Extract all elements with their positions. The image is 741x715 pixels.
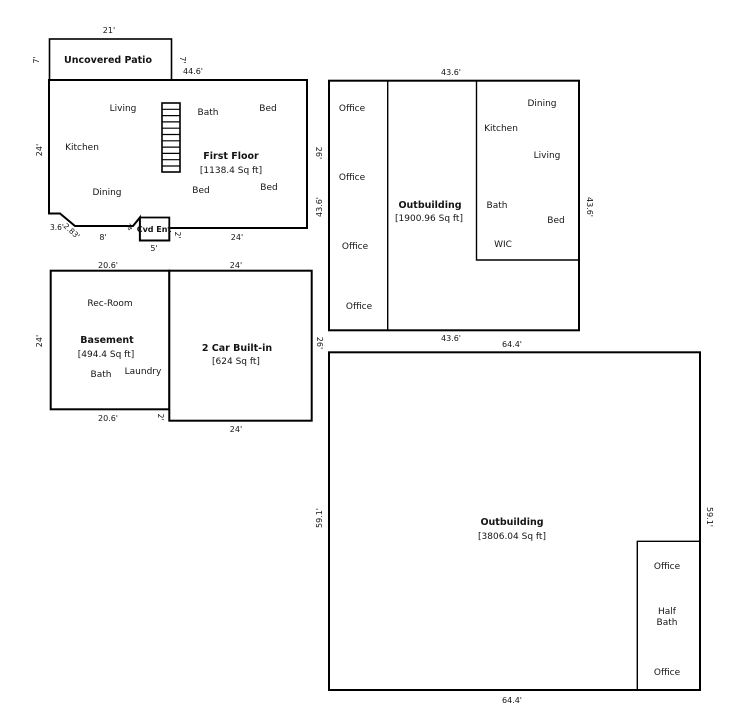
first-floor-dim-right: 26' xyxy=(314,147,323,159)
outbuilding2-dim-top: 64.4' xyxy=(502,340,522,349)
entry-dim-side: 2' xyxy=(173,232,182,239)
basement-dim-bottom: 20.6' xyxy=(98,414,118,423)
room-label-laundry: Laundry xyxy=(125,367,162,377)
room-label-bed: Bed xyxy=(260,183,277,193)
first-floor-name: First Floor xyxy=(203,151,259,162)
room-label-wic: WIC xyxy=(494,240,512,250)
garage-area: [624 Sq ft] xyxy=(212,357,260,367)
staircase-icon xyxy=(162,103,180,172)
first-floor-dim-top: 44.6' xyxy=(183,67,203,76)
first-floor-dim-bottom: 24' xyxy=(231,233,243,242)
outbuilding2-name: Outbuilding xyxy=(480,517,543,528)
patio-dim-left: 7' xyxy=(32,56,41,63)
outbuilding1-dim-bottom: 43.6' xyxy=(441,334,461,343)
garage-dim-top: 24' xyxy=(230,261,242,270)
room-label-living: Living xyxy=(534,151,561,161)
outbuilding1-name: Outbuilding xyxy=(398,200,461,211)
garage: 24' 2 Car Built-in [624 Sq ft] 26' 24' xyxy=(169,261,324,434)
room-label-bed: Bed xyxy=(192,186,209,196)
garage-dim-bottom: 24' xyxy=(230,425,242,434)
room-label-office: Office xyxy=(654,562,681,572)
outbuilding-2: 64.4' 59.1' 59.1' 64.4' Outbuilding [380… xyxy=(315,340,714,705)
outbuilding-1: 43.6' 43.6' 43.6' 43.6' Office Office Of… xyxy=(315,68,594,343)
room-label-office: Office xyxy=(339,173,366,183)
outbuilding1-dim-top: 43.6' xyxy=(441,68,461,77)
covered-entry-label: Cvd Ent xyxy=(137,225,172,234)
basement-area: [494.4 Sq ft] xyxy=(78,350,134,360)
outbuilding2-dim-left: 59.1' xyxy=(315,508,324,528)
outbuilding2-dim-bottom: 64.4' xyxy=(502,696,522,705)
room-label-bath: Bath xyxy=(487,201,508,211)
patio-dim-right: 7' xyxy=(178,56,187,63)
first-floor: 44.6' 24' 26' Living Bath Bed Kitchen Fi… xyxy=(35,67,323,253)
first-floor-dim-porch: 8' xyxy=(99,233,106,242)
basement: 20.6' 24' Rec-Room Basement [494.4 Sq ft… xyxy=(35,261,169,423)
basement-dim-top: 20.6' xyxy=(98,261,118,270)
room-label-bath: Bath xyxy=(91,370,112,380)
basement-name: Basement xyxy=(80,335,134,346)
room-label-office: Office xyxy=(342,242,369,252)
room-label-office: Office xyxy=(346,302,373,312)
outbuilding1-dim-right: 43.6' xyxy=(585,197,594,217)
room-label-kitchen: Kitchen xyxy=(65,143,99,153)
room-label-half-bath: Half xyxy=(658,607,677,617)
patio-dim-top: 21' xyxy=(103,26,115,35)
room-label-bed: Bed xyxy=(259,104,276,114)
room-label-dining: Dining xyxy=(527,99,556,109)
uncovered-patio: 21' Uncovered Patio 7' 7' xyxy=(32,26,187,80)
floor-plan-canvas: 21' Uncovered Patio 7' 7' 44.6' 24' 26' … xyxy=(0,0,741,715)
room-label-dining: Dining xyxy=(92,188,121,198)
room-label-living: Living xyxy=(110,104,137,114)
outbuilding1-area: [1900.96 Sq ft] xyxy=(395,214,463,224)
room-label-rec-room: Rec-Room xyxy=(87,299,132,309)
floor-plan-page: 21' Uncovered Patio 7' 7' 44.6' 24' 26' … xyxy=(0,0,741,715)
room-label-kitchen: Kitchen xyxy=(484,124,518,134)
first-floor-area: [1138.4 Sq ft] xyxy=(200,166,262,176)
first-floor-dim-left: 24' xyxy=(35,144,44,156)
room-label-office: Office xyxy=(654,668,681,678)
patio-name: Uncovered Patio xyxy=(64,55,152,66)
outbuilding2-dim-right: 59.1' xyxy=(705,507,714,527)
outbuilding2-area: [3806.04 Sq ft] xyxy=(478,532,546,542)
garage-dim-right: 26' xyxy=(315,337,324,349)
room-label-office: Office xyxy=(339,104,366,114)
room-label-bed: Bed xyxy=(547,216,564,226)
outbuilding1-dim-left: 43.6' xyxy=(315,197,324,217)
entry-dim-width: 5' xyxy=(150,244,157,253)
basement-dim-left: 24' xyxy=(35,335,44,347)
room-label-half-bath: Bath xyxy=(657,618,678,628)
garage-name: 2 Car Built-in xyxy=(202,343,273,354)
basement-dim-offset: 2' xyxy=(156,414,165,421)
room-label-bath: Bath xyxy=(198,108,219,118)
